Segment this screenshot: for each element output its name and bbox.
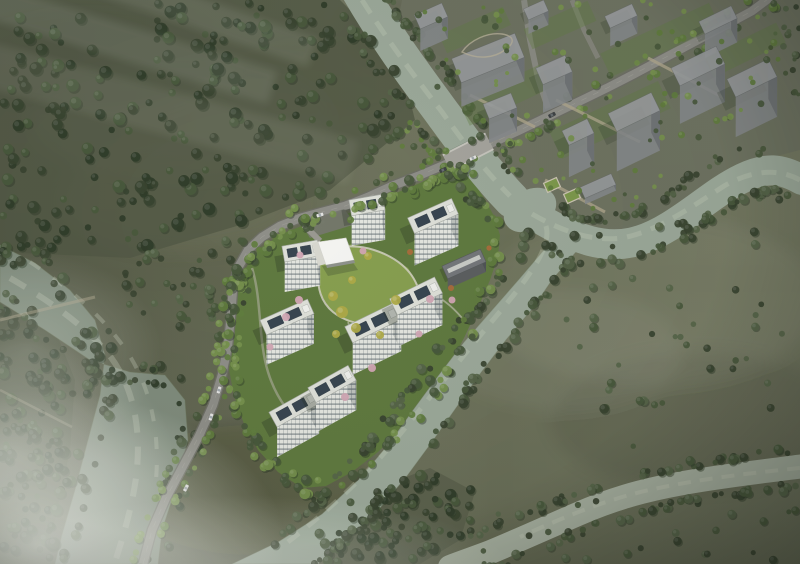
site-plan-rendering — [0, 0, 800, 564]
aerial-rendering-stage — [0, 0, 800, 564]
vignette — [0, 0, 800, 564]
atmosphere — [0, 0, 800, 564]
